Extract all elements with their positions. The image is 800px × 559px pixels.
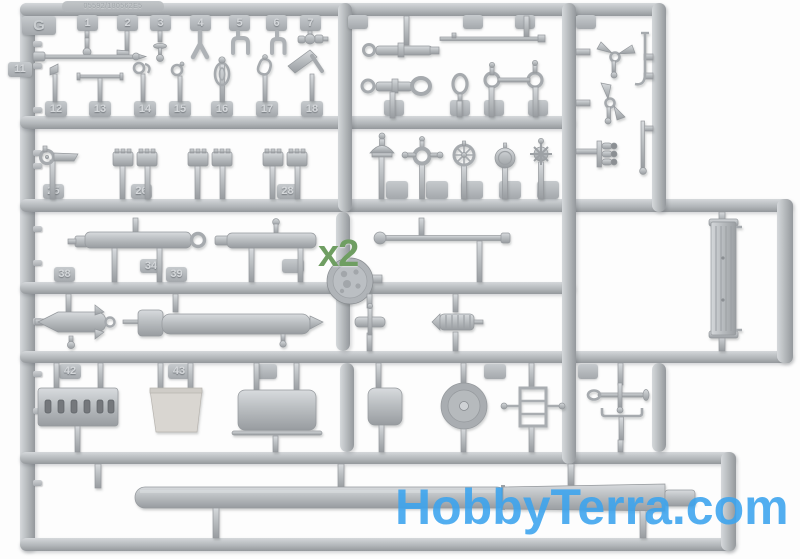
part-pin-12 (50, 64, 58, 102)
part-dome-disc (441, 363, 487, 452)
part-pin-1 (83, 31, 91, 56)
part-recoil-cylinder-b (215, 219, 316, 282)
part-lever-a (576, 42, 635, 78)
part-teardrop-17 (258, 55, 271, 102)
part-large-plate (232, 363, 322, 452)
sprue-parts-layer (0, 0, 800, 559)
part-ring-clamp (402, 137, 443, 200)
part-recoil-cylinder-34 (68, 218, 205, 282)
part-valve-7 (298, 31, 328, 44)
part-plank (709, 212, 742, 351)
part-lever-b (576, 83, 625, 124)
part-oval-ring (453, 75, 467, 118)
part-small-cross-cylinder (355, 294, 385, 351)
part-shackle-a (364, 16, 440, 57)
part-bucket-43 (150, 363, 202, 432)
part-u-bracket (602, 408, 642, 452)
part-ribbed-cylinder (432, 294, 483, 351)
part-blade-18 (288, 50, 322, 101)
part-torpedo-38 (35, 294, 115, 349)
part-clip-plate-42 (38, 363, 118, 452)
part-clamp-5 (233, 32, 248, 53)
part-hookpin-14 (134, 63, 149, 102)
part-periscope-25 (41, 146, 79, 199)
part-long-pin (640, 121, 653, 174)
part-disc (495, 143, 515, 199)
part-looppin-16 (215, 57, 229, 102)
part-barrel-cylinder-39 (123, 294, 323, 347)
part-long-link-rod (374, 218, 510, 282)
part-fork-4 (193, 32, 207, 57)
watermark-text: HobbyTerra.com (395, 478, 789, 536)
multiplier-label: x2 (318, 233, 358, 276)
part-cross-handle (588, 363, 649, 413)
part-ladder-frame (501, 363, 565, 452)
part-star-knob (530, 138, 552, 199)
part-hook-rod-a (635, 33, 653, 84)
sprue-photo: G 05592/180562E5 1 2 3 4 5 6 7 11 12 13 … (0, 0, 800, 559)
part-trod-13 (77, 73, 123, 102)
part-triple-nozzle (576, 141, 617, 167)
part-pin-3 (154, 31, 167, 62)
part-cleaning-rod (440, 16, 545, 42)
part-ringpin-15 (172, 62, 184, 102)
part-clamp-6 (272, 32, 285, 53)
part-mushroom-vent (370, 133, 394, 199)
part-shackle-b (362, 78, 430, 118)
part-pin-2 (117, 31, 129, 56)
part-small-plate (368, 363, 402, 452)
part-track-links-26 (113, 149, 307, 199)
part-spoked-wheel (454, 141, 474, 199)
part-double-ring-link (485, 60, 542, 117)
